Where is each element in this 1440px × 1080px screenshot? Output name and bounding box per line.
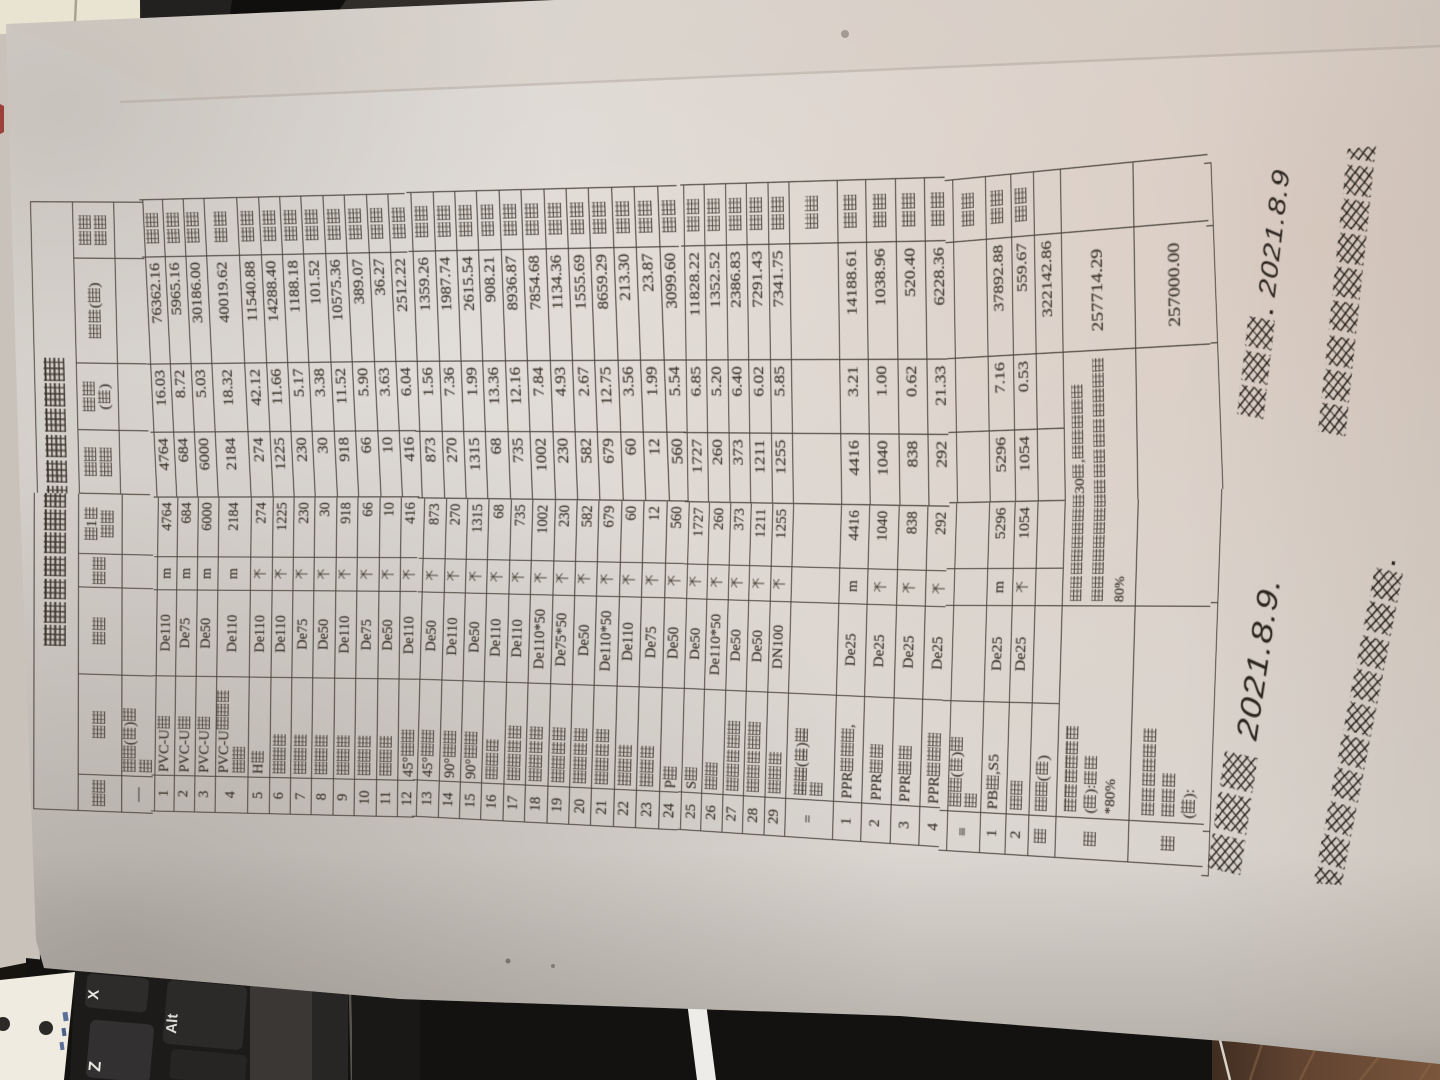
svg-text:Z: Z [85, 1060, 105, 1072]
svg-text:X: X [85, 989, 103, 1000]
svg-text:Alt: Alt [163, 1013, 182, 1034]
